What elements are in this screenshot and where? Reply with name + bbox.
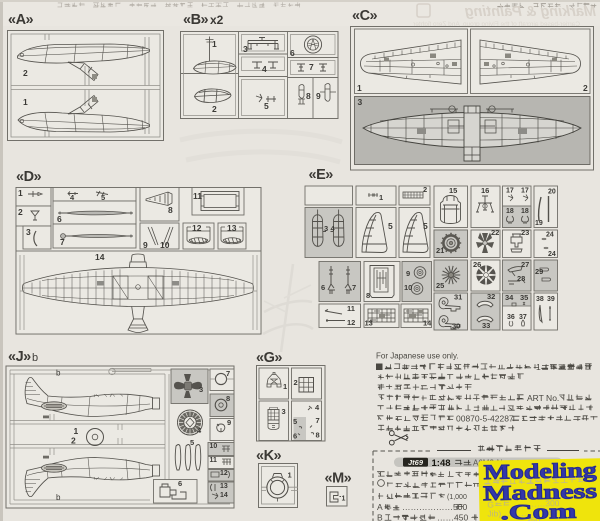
svg-text:1: 1 <box>288 471 292 480</box>
svg-text:5: 5 <box>264 101 269 111</box>
svg-text:20: 20 <box>548 189 556 196</box>
svg-text:b: b <box>56 493 61 502</box>
svg-text:14: 14 <box>95 252 105 262</box>
svg-text:6: 6 <box>178 479 182 488</box>
svg-text:3: 3 <box>199 385 203 394</box>
svg-text:9: 9 <box>316 91 321 101</box>
svg-text:21: 21 <box>436 246 444 255</box>
svg-text:18: 18 <box>506 208 514 215</box>
svg-text:A: A <box>377 502 383 512</box>
svg-text:7: 7 <box>352 283 356 292</box>
svg-text:9: 9 <box>406 269 410 278</box>
svg-text:6: 6 <box>321 283 325 292</box>
svg-text:Jt69: Jt69 <box>408 458 424 467</box>
svg-text:1: 1 <box>357 83 362 93</box>
svg-text:2: 2 <box>212 104 217 114</box>
svg-text:b: b <box>56 369 61 378</box>
svg-text:10: 10 <box>210 443 218 450</box>
svg-text:17: 17 <box>506 188 514 195</box>
svg-text:19: 19 <box>535 220 543 227</box>
svg-text:b: b <box>32 352 38 364</box>
svg-text:28: 28 <box>517 274 525 283</box>
svg-text:3: 3 <box>358 97 363 107</box>
svg-text:34: 34 <box>505 293 514 302</box>
svg-text:2: 2 <box>294 378 298 387</box>
svg-text:5: 5 <box>293 417 297 426</box>
svg-text:18: 18 <box>521 208 529 215</box>
svg-text:ART No.: ART No. <box>527 393 559 403</box>
svg-text:7: 7 <box>316 416 320 425</box>
svg-text:12: 12 <box>192 223 202 233</box>
svg-text:32: 32 <box>487 292 495 301</box>
svg-text:12: 12 <box>347 318 355 327</box>
svg-text:«D»: «D» <box>16 169 42 185</box>
svg-text:26: 26 <box>473 260 481 269</box>
svg-text:5: 5 <box>423 221 428 231</box>
svg-text:17: 17 <box>521 188 529 195</box>
svg-text:8: 8 <box>316 431 320 440</box>
svg-text:«A»: «A» <box>8 12 34 28</box>
svg-text:30: 30 <box>452 322 460 331</box>
svg-text:7: 7 <box>60 237 65 247</box>
svg-text:8: 8 <box>306 91 311 101</box>
svg-text:5: 5 <box>388 221 393 231</box>
svg-text:3: 3 <box>282 407 286 416</box>
svg-text:6: 6 <box>290 48 295 58</box>
svg-text:11: 11 <box>210 457 218 464</box>
svg-text:8: 8 <box>168 205 173 215</box>
svg-text:«E»: «E» <box>309 167 334 183</box>
svg-text:24: 24 <box>548 251 556 258</box>
svg-text:7: 7 <box>226 369 230 378</box>
svg-text:39: 39 <box>547 296 555 303</box>
svg-text:.Com: .Com <box>500 499 577 521</box>
svg-text:1: 1 <box>536 362 541 372</box>
svg-text:1: 1 <box>23 97 28 107</box>
svg-text:25: 25 <box>436 281 444 290</box>
svg-text:6: 6 <box>57 214 62 224</box>
svg-text:B: B <box>377 513 383 521</box>
svg-text:1: 1 <box>74 426 79 436</box>
svg-text:«M»: «M» <box>325 471 352 487</box>
svg-text:36: 36 <box>507 314 515 321</box>
svg-text:24: 24 <box>546 232 554 239</box>
svg-text:38: 38 <box>536 296 544 303</box>
svg-text:29: 29 <box>535 267 543 276</box>
svg-text:……450: ……450 <box>437 513 468 521</box>
svg-text:13: 13 <box>220 483 228 490</box>
svg-text:2: 2 <box>583 83 588 93</box>
svg-text:Marking & Painting: Marking & Painting <box>465 4 596 20</box>
svg-text:«B»: «B» <box>183 12 209 28</box>
svg-text:(1,000: (1,000 <box>447 494 467 501</box>
svg-text:7: 7 <box>309 62 314 72</box>
svg-text:1: 1 <box>379 193 383 202</box>
svg-text:13: 13 <box>365 319 373 328</box>
svg-text:14: 14 <box>220 492 228 499</box>
svg-text:1: 1 <box>18 188 23 198</box>
svg-text:2: 2 <box>423 185 427 194</box>
svg-text:1:48: 1:48 <box>432 458 451 469</box>
svg-text:8: 8 <box>226 394 230 403</box>
svg-text:For Japanese use only.: For Japanese use only. <box>376 352 459 361</box>
svg-text:9: 9 <box>143 240 148 250</box>
svg-text:3: 3 <box>243 44 248 54</box>
svg-text:11: 11 <box>347 304 355 313</box>
svg-text:«C»: «C» <box>352 8 378 24</box>
svg-text:2: 2 <box>23 68 28 78</box>
svg-text:13: 13 <box>227 223 237 233</box>
svg-text:x2: x2 <box>210 13 224 27</box>
svg-text:4: 4 <box>262 64 267 74</box>
svg-text:16: 16 <box>481 186 489 195</box>
svg-text:35: 35 <box>520 293 528 302</box>
svg-text:23: 23 <box>521 228 529 237</box>
svg-text:14: 14 <box>423 319 432 328</box>
svg-text:«K»: «K» <box>256 448 282 464</box>
svg-text:33: 33 <box>482 321 490 330</box>
svg-text:27: 27 <box>521 260 529 269</box>
svg-text:«J»: «J» <box>8 349 31 365</box>
svg-text:31: 31 <box>454 293 462 302</box>
svg-text:5: 5 <box>190 438 194 447</box>
svg-text:«G»: «G» <box>256 350 282 366</box>
svg-text:5: 5 <box>101 193 105 202</box>
svg-text:6: 6 <box>293 432 297 441</box>
svg-text:1: 1 <box>212 39 217 49</box>
svg-text:11: 11 <box>193 191 202 201</box>
svg-text:10: 10 <box>160 240 170 250</box>
svg-text:12: 12 <box>220 470 228 477</box>
svg-text:2: 2 <box>18 207 23 217</box>
svg-text:9: 9 <box>227 418 231 427</box>
svg-text:3: 3 <box>324 224 328 233</box>
svg-text:00870-5-42287: 00870-5-42287 <box>456 414 514 424</box>
svg-text:1: 1 <box>342 496 346 503</box>
svg-text:3: 3 <box>26 227 31 237</box>
svg-text:8: 8 <box>366 291 370 300</box>
svg-text:10: 10 <box>404 283 412 292</box>
svg-text:22: 22 <box>491 228 499 237</box>
svg-text:1: 1 <box>283 382 287 391</box>
svg-text:2: 2 <box>71 436 76 446</box>
svg-text:15: 15 <box>449 186 457 195</box>
